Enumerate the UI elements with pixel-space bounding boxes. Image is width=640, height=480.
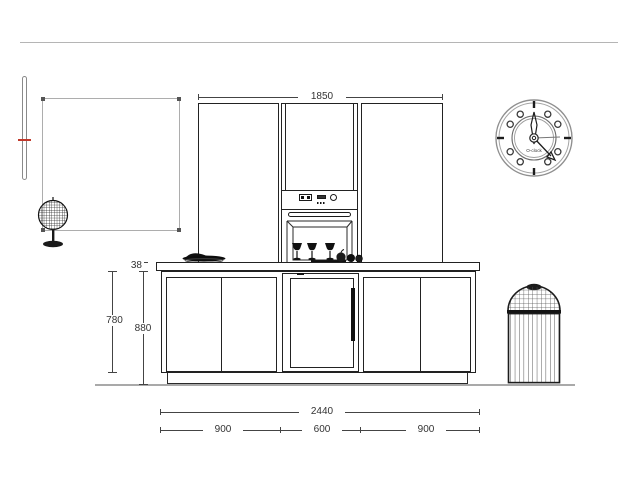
appliance-door-handle [351,288,355,341]
dim-label-2440: 2440 [299,406,345,417]
clock-label: O-clock [526,148,542,153]
oven-knob-icon [330,194,337,201]
oven-panel-bottom-line [282,209,357,210]
dim-tick [108,372,117,373]
oven-handle [288,212,351,217]
dim-label-38: 38 [118,260,144,271]
tall-cabinet-left [198,103,279,263]
dim-label-900-right: 900 [406,424,446,435]
dim-tick [160,427,161,433]
base-doors-right [363,277,471,372]
dim-label-1850: 1850 [298,91,346,102]
kitchen-elevation-drawing: 1850 [0,0,640,480]
wine-glasses [292,243,335,260]
wall-light-strip [22,76,27,180]
sphere-lamp [36,197,72,253]
dim-label-880: 880 [127,323,159,334]
counter-niche [283,218,363,264]
frame-corner [41,97,45,101]
dim-tick [160,409,161,415]
oven-column-inner-line [353,104,354,190]
plinth [167,373,468,384]
dim-tick [198,94,199,100]
oven-display-icon [299,194,312,201]
frame-corner [177,228,181,232]
dim-tick [479,409,480,415]
oven-panel-top-line [282,190,357,191]
countertop [156,262,480,271]
dim-tick [139,384,148,385]
dim-label-780: 780 [99,315,130,326]
oven-column-inner-line [285,104,286,190]
floor-line [95,384,575,386]
dim-label-600: 600 [302,424,342,435]
appliance-door [290,278,354,368]
frame-corner [177,97,181,101]
fruit-bowl [336,250,362,263]
dim-tick [108,271,117,272]
red-marker-icon [18,139,31,141]
door-divider [420,278,421,371]
oven-buttons-icon [317,202,326,204]
oven-timer-icon [317,195,326,199]
dim-tick [280,427,281,433]
dim-label-900-left: 900 [203,424,243,435]
dim-tick [360,427,361,433]
dim-tick [479,427,480,433]
waste-bin [506,281,563,384]
wall-clock: O-clock [494,98,574,178]
dim-tick [442,94,443,100]
door-gap-mark [297,273,304,276]
ceiling-line [20,42,618,43]
tall-cabinet-right [361,103,443,263]
door-divider [221,278,222,371]
